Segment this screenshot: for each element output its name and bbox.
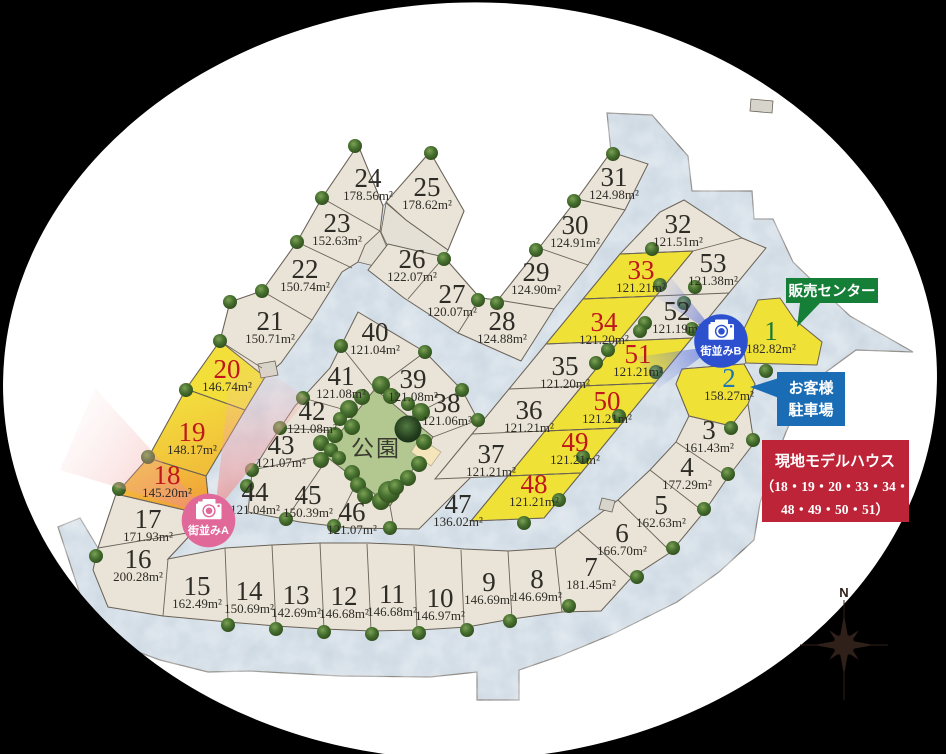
svg-text:48・49・50・51）: 48・49・50・51）	[781, 502, 889, 517]
svg-text:146.97m²: 146.97m²	[415, 608, 465, 623]
svg-text:150.69m²: 150.69m²	[224, 601, 274, 616]
svg-text:120.07m²: 120.07m²	[427, 304, 477, 319]
svg-text:146.69m²: 146.69m²	[512, 589, 562, 604]
svg-text:街並みA: 街並みA	[187, 523, 229, 537]
svg-text:121.21m²: 121.21m²	[509, 494, 559, 509]
svg-text:178.62m²: 178.62m²	[402, 197, 452, 212]
svg-text:146.69m²: 146.69m²	[464, 592, 514, 607]
svg-text:146.68m²: 146.68m²	[367, 604, 417, 619]
svg-text:142.69m²: 142.69m²	[271, 605, 321, 620]
svg-text:152.63m²: 152.63m²	[312, 233, 362, 248]
svg-text:166.70m²: 166.70m²	[597, 543, 647, 558]
svg-text:121.21m²: 121.21m²	[466, 464, 516, 479]
svg-text:121.21m²: 121.21m²	[616, 280, 666, 295]
svg-text:街並みB: 街並みB	[700, 344, 742, 358]
svg-text:121.19m²: 121.19m²	[652, 321, 702, 336]
svg-text:158.27m²: 158.27m²	[704, 388, 754, 403]
svg-text:124.98m²: 124.98m²	[589, 187, 639, 202]
svg-text:121.20m²: 121.20m²	[540, 376, 590, 391]
svg-text:121.21m²: 121.21m²	[613, 364, 663, 379]
svg-text:現地モデルハウス: 現地モデルハウス	[775, 452, 895, 470]
svg-text:（18・19・20・33・34・: （18・19・20・33・34・	[761, 479, 910, 494]
svg-text:121.21m²: 121.21m²	[582, 411, 632, 426]
svg-text:お客様: お客様	[788, 379, 834, 397]
svg-text:N: N	[839, 585, 848, 600]
svg-text:146.68m²: 146.68m²	[319, 606, 369, 621]
svg-text:181.45m²: 181.45m²	[566, 577, 616, 592]
svg-text:121.04m²: 121.04m²	[230, 502, 280, 517]
svg-text:124.88m²: 124.88m²	[477, 331, 527, 346]
svg-text:200.28m²: 200.28m²	[113, 569, 163, 584]
svg-text:121.07m²: 121.07m²	[256, 455, 306, 470]
svg-text:122.07m²: 122.07m²	[387, 269, 437, 284]
svg-text:148.17m²: 148.17m²	[167, 442, 217, 457]
svg-text:145.20m²: 145.20m²	[142, 485, 192, 500]
svg-text:公園: 公園	[351, 436, 401, 461]
svg-text:121.20m²: 121.20m²	[579, 332, 629, 347]
svg-text:150.71m²: 150.71m²	[245, 331, 295, 346]
svg-text:121.21m²: 121.21m²	[504, 420, 554, 435]
svg-text:136.02m²: 136.02m²	[433, 514, 483, 529]
svg-text:121.04m²: 121.04m²	[350, 342, 400, 357]
svg-text:124.91m²: 124.91m²	[550, 235, 600, 250]
svg-text:駐車場: 駐車場	[788, 401, 833, 419]
svg-text:121.38m²: 121.38m²	[688, 273, 738, 288]
svg-text:178.56m²: 178.56m²	[343, 188, 393, 203]
svg-text:121.06m²: 121.06m²	[422, 413, 472, 428]
svg-text:150.39m²: 150.39m²	[283, 505, 333, 520]
svg-text:販売センター: 販売センター	[789, 282, 876, 300]
svg-text:124.90m²: 124.90m²	[511, 282, 561, 297]
svg-text:162.63m²: 162.63m²	[636, 515, 686, 530]
svg-text:162.49m²: 162.49m²	[172, 596, 222, 611]
svg-text:121.08m²: 121.08m²	[287, 421, 337, 436]
svg-text:121.51m²: 121.51m²	[653, 234, 703, 249]
svg-text:121.07m²: 121.07m²	[327, 522, 377, 537]
svg-text:150.74m²: 150.74m²	[280, 279, 330, 294]
svg-text:146.74m²: 146.74m²	[202, 379, 252, 394]
svg-text:121.21m²: 121.21m²	[550, 452, 600, 467]
svg-text:182.82m²: 182.82m²	[746, 341, 796, 356]
svg-text:177.29m²: 177.29m²	[662, 477, 712, 492]
svg-text:121.08m²: 121.08m²	[388, 389, 438, 404]
svg-text:171.93m²: 171.93m²	[123, 529, 173, 544]
